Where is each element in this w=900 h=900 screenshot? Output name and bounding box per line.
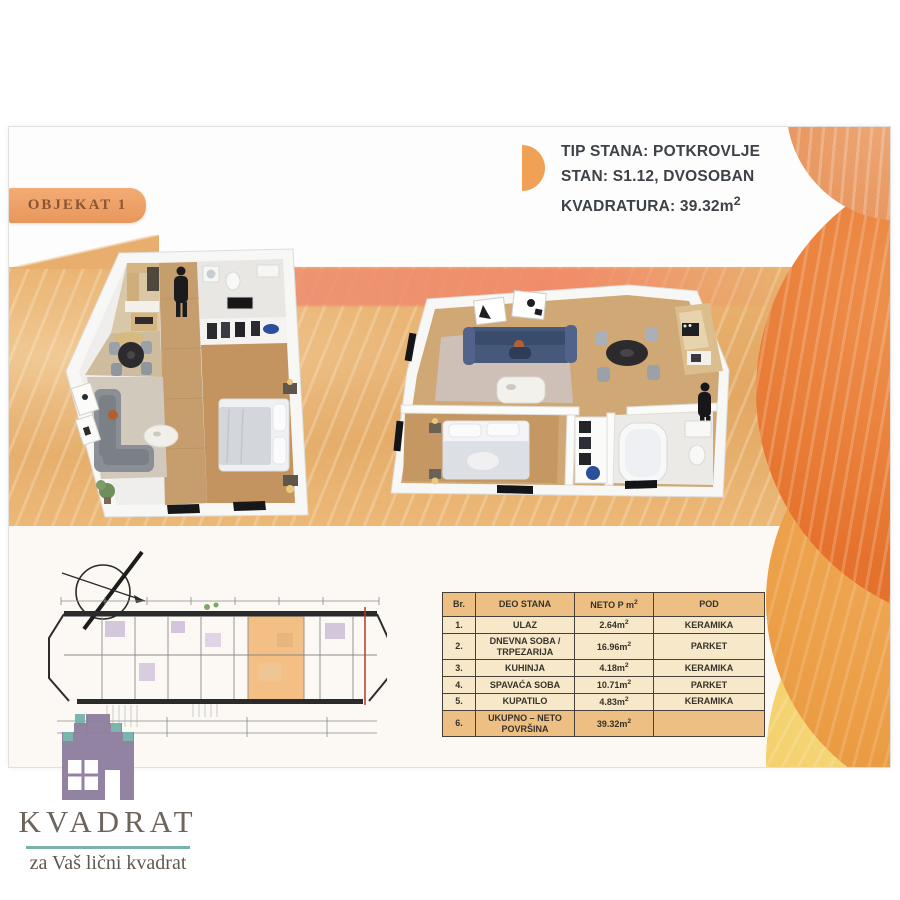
coffee-table bbox=[497, 377, 545, 403]
table-cell: DNEVNA SOBA / TRPEZARIJA bbox=[476, 633, 575, 660]
sofa bbox=[463, 325, 577, 365]
table-cell: 16.96m2 bbox=[575, 633, 654, 660]
table-cell: UKUPNO – NETO POVRŠINA bbox=[476, 710, 575, 737]
closet-shelves bbox=[575, 417, 607, 483]
table-header-row: Br. DEO STANA NETO P m2 POD bbox=[443, 593, 765, 617]
table-row: 5.KUPATILO4.83m2KERAMIKA bbox=[443, 693, 765, 710]
header-deo-stana: DEO STANA bbox=[476, 593, 575, 617]
table-cell: SPAVAĆA SOBA bbox=[476, 677, 575, 694]
area-table-body: 1.ULAZ2.64m2KERAMIKA2.DNEVNA SOBA / TRPE… bbox=[443, 617, 765, 737]
floor-plan-3d-left bbox=[61, 239, 316, 531]
header-neto: NETO P m2 bbox=[575, 593, 654, 617]
page-background: OBJEKAT 1 TIP STANA: POTKROVLJE STAN: S1… bbox=[0, 0, 900, 900]
house-logo-icon bbox=[52, 714, 144, 804]
table-cell: 1. bbox=[443, 617, 476, 634]
unit-type-line: TIP STANA: POTKROVLJE bbox=[561, 139, 760, 164]
bathtub bbox=[619, 423, 667, 483]
objekat-banner-label: OBJEKAT 1 bbox=[28, 197, 128, 214]
brand-name: KVADRAT bbox=[12, 804, 204, 840]
table-row: 3.KUHINJA4.18m2KERAMIKA bbox=[443, 660, 765, 677]
table-cell: PARKET bbox=[654, 633, 765, 660]
brochure-card: OBJEKAT 1 TIP STANA: POTKROVLJE STAN: S1… bbox=[8, 126, 891, 768]
table-cell: 4.83m2 bbox=[575, 693, 654, 710]
bed bbox=[443, 421, 529, 479]
table-cell: ULAZ bbox=[476, 617, 575, 634]
coffee-table bbox=[144, 425, 178, 447]
table-cell: KUHINJA bbox=[476, 660, 575, 677]
table-row: 4.SPAVAĆA SOBA10.71m2PARKET bbox=[443, 677, 765, 694]
bed bbox=[219, 399, 289, 471]
table-cell: 5. bbox=[443, 693, 476, 710]
table-cell: KUPATILO bbox=[476, 693, 575, 710]
table-cell: 39.32m2 bbox=[575, 710, 654, 737]
table-cell: KERAMIKA bbox=[654, 617, 765, 634]
floor-plan-3d-right bbox=[379, 275, 739, 509]
unit-area-line: KVADRATURA: 39.32m2 bbox=[561, 189, 760, 219]
highlighted-unit bbox=[248, 616, 304, 699]
table-cell: 4.18m2 bbox=[575, 660, 654, 677]
table-cell bbox=[654, 710, 765, 737]
table-cell: 6. bbox=[443, 710, 476, 737]
kvadrat-logo: KVADRAT za Vaš lični kvadrat bbox=[12, 700, 227, 890]
unit-number-line: STAN: S1.12, DVOSOBAN bbox=[561, 164, 760, 189]
table-cell: 4. bbox=[443, 677, 476, 694]
objekat-banner: OBJEKAT 1 bbox=[9, 188, 146, 223]
table-cell: 10.71m2 bbox=[575, 677, 654, 694]
table-row: 1.ULAZ2.64m2KERAMIKA bbox=[443, 617, 765, 634]
table-cell: KERAMIKA bbox=[654, 693, 765, 710]
table-cell: 3. bbox=[443, 660, 476, 677]
header-br: Br. bbox=[443, 593, 476, 617]
table-cell: 2.64m2 bbox=[575, 617, 654, 634]
table-cell: 2. bbox=[443, 633, 476, 660]
table-cell: KERAMIKA bbox=[654, 660, 765, 677]
table-cell: PARKET bbox=[654, 677, 765, 694]
table-row: 2.DNEVNA SOBA / TRPEZARIJA16.96m2PARKET bbox=[443, 633, 765, 660]
table-row: 6.UKUPNO – NETO POVRŠINA39.32m2 bbox=[443, 710, 765, 737]
header-pod: POD bbox=[654, 593, 765, 617]
brand-tagline: za Vaš lični kvadrat bbox=[12, 852, 204, 875]
area-table: Br. DEO STANA NETO P m2 POD 1.ULAZ2.64m2… bbox=[442, 592, 765, 737]
brand-underline bbox=[26, 846, 190, 849]
